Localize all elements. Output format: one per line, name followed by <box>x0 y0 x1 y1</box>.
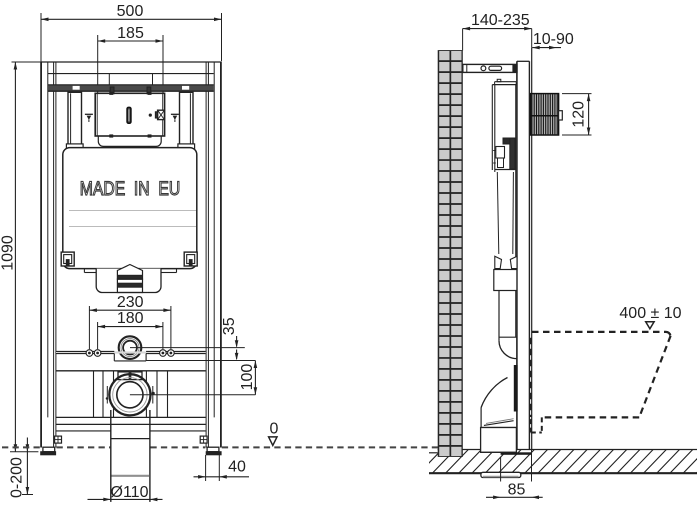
svg-text:85: 85 <box>508 482 526 499</box>
svg-text:120: 120 <box>570 101 587 128</box>
svg-text:10-90: 10-90 <box>533 31 574 48</box>
svg-text:40: 40 <box>228 459 246 476</box>
svg-text:0-200: 0-200 <box>9 457 26 498</box>
svg-text:500: 500 <box>117 3 144 20</box>
svg-text:35: 35 <box>221 317 238 335</box>
svg-text:Ø110: Ø110 <box>111 484 149 501</box>
svg-text:MADE IN EU: MADE IN EU <box>80 179 181 200</box>
svg-text:0: 0 <box>270 421 279 438</box>
svg-text:180: 180 <box>117 310 144 327</box>
svg-text:140-235: 140-235 <box>471 12 530 29</box>
svg-text:230: 230 <box>117 294 144 311</box>
svg-text:185: 185 <box>117 25 144 42</box>
svg-text:1090: 1090 <box>0 235 17 271</box>
svg-text:100: 100 <box>239 364 256 391</box>
svg-text:400 ± 10: 400 ± 10 <box>619 305 681 322</box>
